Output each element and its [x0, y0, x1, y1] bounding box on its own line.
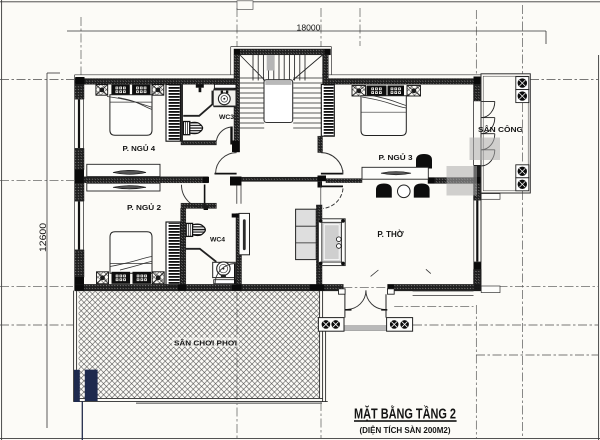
- svg-text:P. NGỦ 3: P. NGỦ 3: [379, 153, 413, 162]
- svg-text:WC4: WC4: [210, 237, 225, 244]
- svg-text:MẶT BẰNG TẦNG 2: MẶT BẰNG TẦNG 2: [354, 405, 456, 423]
- svg-text:18000: 18000: [297, 22, 321, 32]
- svg-text:P. NGỦ 4: P. NGỦ 4: [123, 144, 156, 153]
- svg-text:12600: 12600: [38, 223, 49, 252]
- svg-text:(DIỆN TÍCH SÀN 200M2): (DIỆN TÍCH SÀN 200M2): [360, 424, 451, 435]
- svg-text:SÂN CHƠI PHƠI: SÂN CHƠI PHƠI: [174, 339, 237, 348]
- svg-text:SÂN CÔNG: SÂN CÔNG: [478, 125, 524, 134]
- svg-text:P. NGỦ 2: P. NGỦ 2: [127, 203, 161, 212]
- svg-text:WC3: WC3: [219, 114, 234, 121]
- svg-text:P. THỜ: P. THỜ: [377, 230, 403, 239]
